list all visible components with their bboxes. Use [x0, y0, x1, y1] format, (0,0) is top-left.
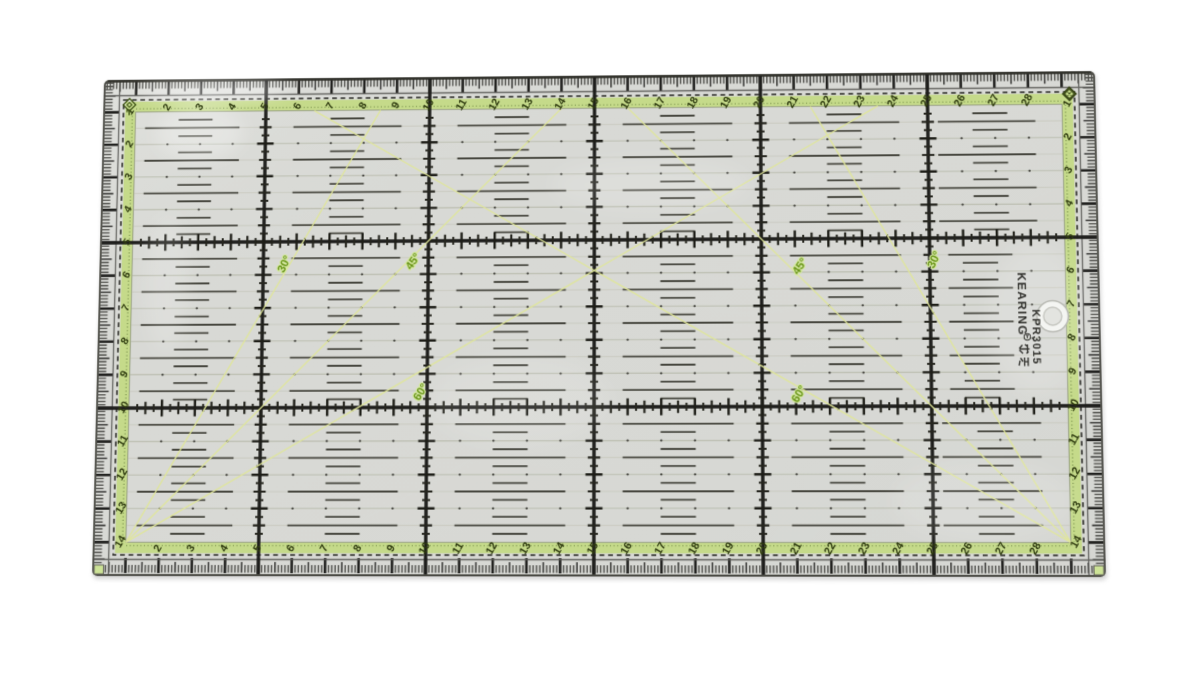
svg-text:KPR3015: KPR3015 [1029, 309, 1043, 365]
svg-text:KEARING: KEARING [1014, 272, 1028, 336]
